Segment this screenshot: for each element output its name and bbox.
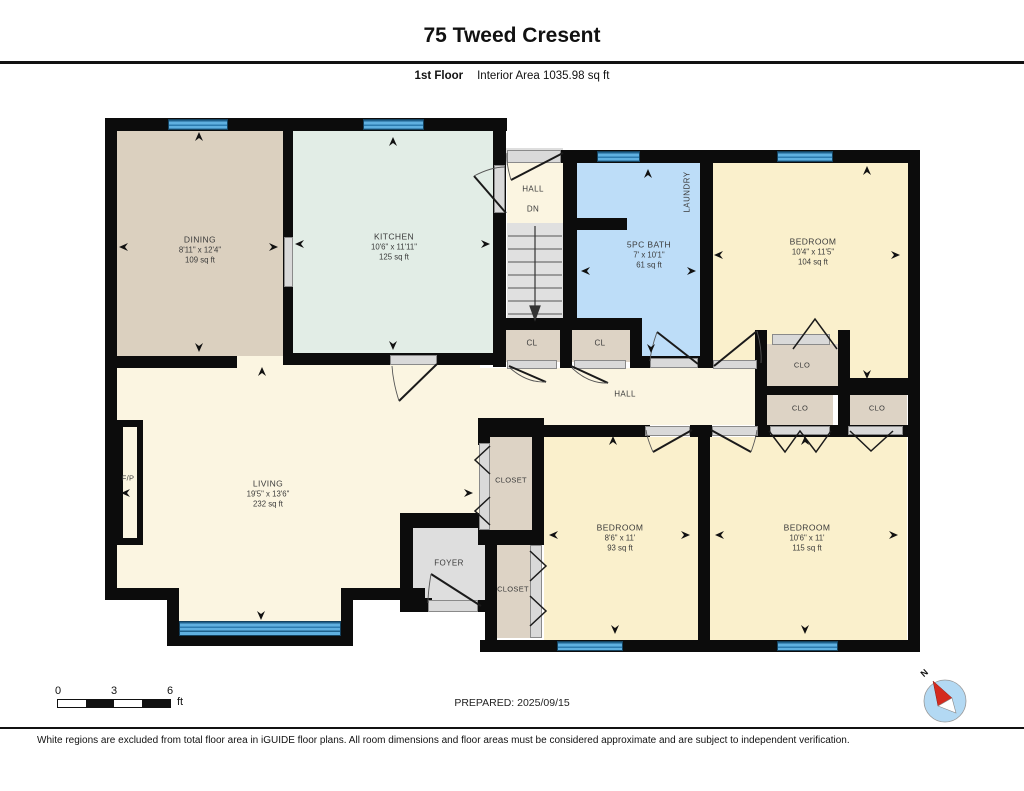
- dimension-arrow: [549, 531, 558, 539]
- dimension-arrow: [119, 243, 128, 251]
- room-label-living: LIVING 19'5" x 13'6" 232 sq ft: [247, 478, 290, 509]
- door-swing-arc: [392, 153, 761, 603]
- room-label-bedroom-s2: BEDROOM 10'6" x 11' 115 sq ft: [784, 522, 831, 553]
- dimension-arrow: [889, 531, 898, 539]
- closet-cl1-label: CL: [526, 339, 537, 348]
- stairs-down-label: DN: [527, 205, 539, 214]
- door-swing: [399, 153, 757, 606]
- dimension-arrow: [681, 531, 690, 539]
- prepared-date-label: PREPARED: 2025/09/15: [0, 697, 1024, 709]
- scale-tick-0: 0: [55, 685, 61, 697]
- closet-upper-label: CLOSET: [495, 476, 527, 485]
- dimension-arrow: [389, 137, 397, 146]
- dimension-arrow: [481, 240, 490, 248]
- floorplan-page: 75 Tweed Cresent 1st FloorInterior Area …: [0, 0, 1024, 791]
- stairs-direction-arrow: [530, 226, 540, 320]
- closet-cl2-label: CL: [594, 339, 605, 348]
- stair-hall-label: HALL: [522, 185, 544, 194]
- closet-clo1-label: CLO: [794, 361, 810, 370]
- dimension-arrow: [195, 343, 203, 352]
- dimension-arrow: [863, 166, 871, 175]
- hall-label: HALL: [614, 390, 636, 399]
- room-label-dining: DINING 8'11" x 12'4" 109 sq ft: [179, 234, 221, 265]
- dimension-arrow: [121, 489, 130, 497]
- closet-lower-label: CLOSET: [497, 585, 529, 594]
- dimension-arrow: [891, 251, 900, 259]
- footer-disclaimer: White regions are excluded from total fl…: [37, 735, 850, 746]
- room-label-kitchen: KITCHEN 10'6" x 11'11" 125 sq ft: [371, 231, 417, 262]
- dimension-arrow: [295, 240, 304, 248]
- dimension-arrow: [801, 625, 809, 634]
- dimension-arrow: [644, 169, 652, 178]
- dimension-arrow: [611, 625, 619, 634]
- dimension-arrows: [119, 132, 900, 634]
- dimension-arrow: [647, 344, 655, 353]
- closet-clo2-label: CLO: [792, 404, 808, 413]
- room-label-bedroom-s1: BEDROOM 8'6" x 11' 93 sq ft: [597, 522, 644, 553]
- scale-tick-6: 6: [167, 685, 173, 697]
- dimension-arrow: [257, 611, 265, 620]
- dimension-arrow: [389, 341, 397, 350]
- dimension-arrow: [581, 267, 590, 275]
- dimension-arrow: [195, 132, 203, 141]
- dimension-arrow: [464, 489, 473, 497]
- floorplan-annotations: [0, 0, 1024, 791]
- scale-tick-3: 3: [111, 685, 117, 697]
- room-label-bedroom-ne: BEDROOM 10'4" x 11'5" 104 sq ft: [790, 236, 837, 267]
- dimension-arrow: [687, 267, 696, 275]
- laundry-label: LAUNDRY: [683, 171, 692, 212]
- foyer-label: FOYER: [434, 559, 464, 568]
- dimension-arrow: [258, 367, 266, 376]
- closet-clo3-label: CLO: [869, 404, 885, 413]
- room-label-bath: 5PC BATH 7' x 10'1" 61 sq ft: [627, 239, 671, 270]
- bifold-door: [475, 319, 893, 626]
- dimension-arrow: [714, 251, 723, 259]
- footer-divider: [0, 727, 1024, 729]
- dimension-arrow: [715, 531, 724, 539]
- fireplace-label: F/P: [122, 474, 135, 483]
- dimension-arrow: [269, 243, 278, 251]
- dimension-arrow: [863, 370, 871, 379]
- dimension-arrow: [609, 436, 617, 445]
